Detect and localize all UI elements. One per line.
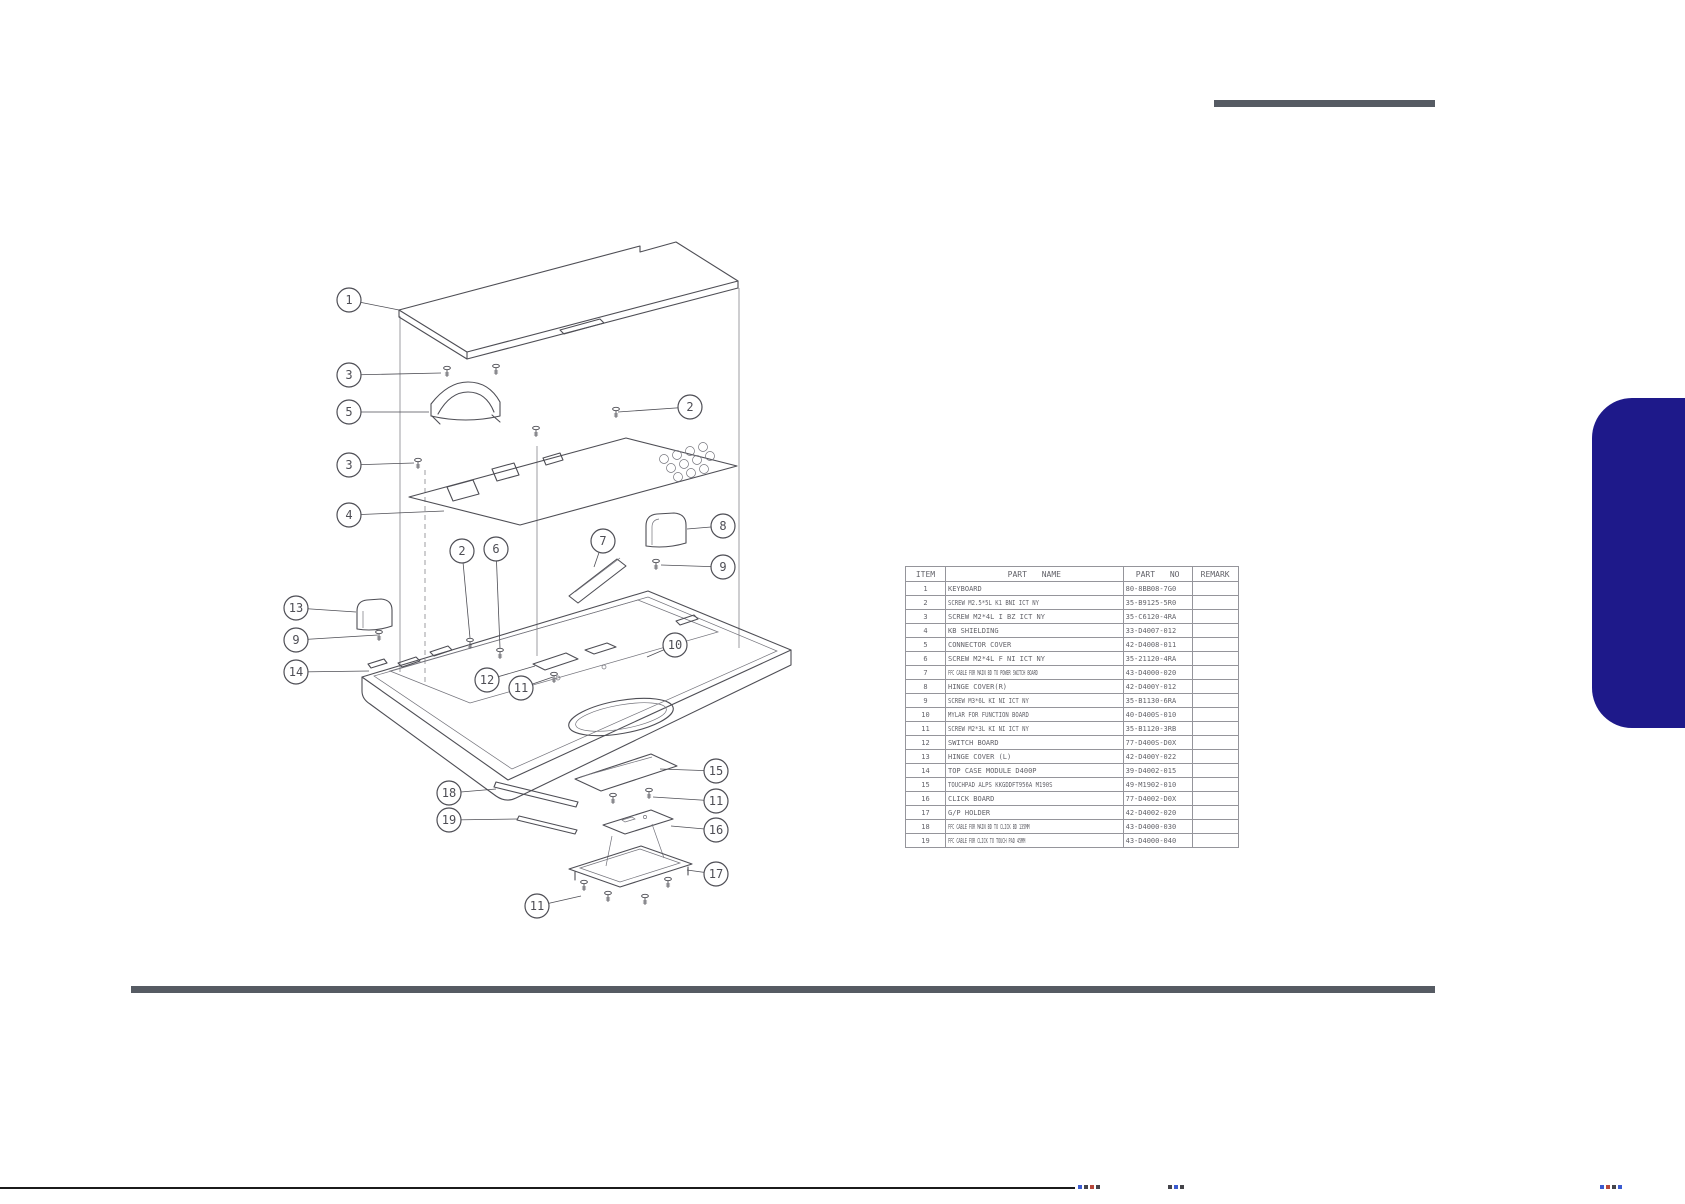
table-header-row: ITEM PART NAME PART NO REMARK [906, 567, 1239, 582]
cell-name: CLICK BOARD [946, 792, 1124, 806]
callout-number: 18 [442, 786, 456, 800]
callout-number: 4 [345, 508, 352, 522]
callout-9: 9 [284, 628, 378, 652]
hinge-cover-r-part [646, 513, 686, 547]
cell-part_no: 35-B1130-6RA [1123, 694, 1192, 708]
keyboard-part [399, 242, 738, 359]
shielding-screws [415, 407, 620, 468]
callout-number: 12 [480, 673, 494, 687]
cell-item: 4 [906, 624, 946, 638]
cell-part_no: 39-D4002-015 [1123, 764, 1192, 778]
callout-7: 7 [591, 529, 615, 567]
table-row: 3SCREW M2*4L I BZ ICT NY35-C6120-4RA [906, 610, 1239, 624]
callout-4: 4 [337, 503, 444, 527]
cell-remark [1192, 596, 1238, 610]
ffc-cable-18-part [494, 782, 578, 807]
table-row: 6SCREW M2*4L F NI ICT NY35-21120-4RA [906, 652, 1239, 666]
cell-item: 18 [906, 820, 946, 834]
cell-name: SCREW M2*4L F NI ICT NY [946, 652, 1124, 666]
kb-shielding-part [409, 438, 737, 525]
cell-part_no: 43-D4000-020 [1123, 666, 1192, 680]
callout-10: 10 [647, 633, 687, 657]
cell-part_no: 42-D400Y-012 [1123, 680, 1192, 694]
cell-part_no: 77-D400S-D0X [1123, 736, 1192, 750]
table-row: 4KB SHIELDING33-D4007-012 [906, 624, 1239, 638]
cell-part_no: 35-C6120-4RA [1123, 610, 1192, 624]
cell-item: 15 [906, 778, 946, 792]
callout-number: 11 [530, 899, 544, 913]
cell-name: TOUCHPAD ALPS KKGDDFT956A M190S [946, 778, 1124, 792]
callout-layer: 135342267891391410121115181119161711 [284, 288, 735, 918]
callout-6: 6 [484, 537, 508, 648]
cell-name: SCREW M2*4L I BZ ICT NY [946, 610, 1124, 624]
callout-number: 13 [289, 601, 303, 615]
cell-name: SCREW M3*6L KI NI ICT NY [946, 694, 1124, 708]
cell-item: 2 [906, 596, 946, 610]
cell-part_no: 42-D400Y-022 [1123, 750, 1192, 764]
cell-item: 5 [906, 638, 946, 652]
cell-part_no: 43-D4000-040 [1123, 834, 1192, 848]
cell-remark [1192, 778, 1238, 792]
callout-number: 17 [709, 867, 723, 881]
callout-number: 9 [719, 560, 726, 574]
cell-remark [1192, 764, 1238, 778]
cell-remark [1192, 722, 1238, 736]
table-row: 12SWITCH BOARD77-D400S-D0X [906, 736, 1239, 750]
table-row: 5CONNECTOR COVER42-D4008-011 [906, 638, 1239, 652]
callout-number: 16 [709, 823, 723, 837]
callout-number: 19 [442, 813, 456, 827]
cell-remark [1192, 666, 1238, 680]
cell-part_no: 33-D4007-012 [1123, 624, 1192, 638]
cell-item: 12 [906, 736, 946, 750]
table-row: 10MYLAR FOR FUNCTION BOARD40-D400S-010 [906, 708, 1239, 722]
cell-remark [1192, 708, 1238, 722]
gp-holder-part [569, 824, 692, 905]
table-row: 11SCREW M2*3L KI NI ICT NY35-B1120-3RB [906, 722, 1239, 736]
cell-name: KEYBOARD [946, 582, 1124, 596]
callout-number: 8 [719, 519, 726, 533]
cell-part_no: 35-B1120-3RB [1123, 722, 1192, 736]
projection-lines [400, 288, 739, 686]
cell-part_no: 42-D4008-011 [1123, 638, 1192, 652]
callout-11: 11 [653, 789, 728, 813]
hinge-cover-l-part [357, 599, 392, 630]
ffc-cable-part [569, 558, 626, 603]
cell-item: 17 [906, 806, 946, 820]
cell-item: 11 [906, 722, 946, 736]
connector-cover-part [431, 364, 500, 424]
callout-3: 3 [337, 453, 414, 477]
callout-number: 14 [289, 665, 303, 679]
cell-item: 19 [906, 834, 946, 848]
table-row: 9SCREW M3*6L KI NI ICT NY35-B1130-6RA [906, 694, 1239, 708]
cell-name: SCREW M2*3L KI NI ICT NY [946, 722, 1124, 736]
cell-remark [1192, 806, 1238, 820]
callout-2: 2 [450, 539, 474, 638]
callout-9: 9 [661, 555, 735, 579]
table-row: 17G/P HOLDER42-D4002-020 [906, 806, 1239, 820]
cell-remark [1192, 750, 1238, 764]
cell-name: G/P HOLDER [946, 806, 1124, 820]
manual-page: { "page": { "background": "#ffffff", "ac… [0, 0, 1685, 1193]
callout-16: 16 [671, 818, 728, 842]
cell-remark [1192, 582, 1238, 596]
function-board-area [533, 643, 616, 680]
cell-part_no: 77-D4002-D0X [1123, 792, 1192, 806]
cell-name: HINGE COVER (L) [946, 750, 1124, 764]
table-row: 14TOP CASE MODULE D400P39-D4002-015 [906, 764, 1239, 778]
callout-18: 18 [437, 781, 496, 805]
parts-table: ITEM PART NAME PART NO REMARK 1KEYBOARD8… [905, 566, 1239, 848]
callout-number: 2 [458, 544, 465, 558]
callout-number: 3 [345, 368, 352, 382]
cell-remark [1192, 820, 1238, 834]
cell-remark [1192, 610, 1238, 624]
cell-part_no: 35-B9125-5R0 [1123, 596, 1192, 610]
callout-3: 3 [337, 363, 441, 387]
touchpad-opening [566, 692, 676, 743]
callout-number: 2 [686, 400, 693, 414]
cell-remark [1192, 694, 1238, 708]
header-part-name: PART NAME [946, 567, 1124, 582]
cell-item: 1 [906, 582, 946, 596]
screw-9r [653, 559, 660, 569]
cell-remark [1192, 624, 1238, 638]
cell-item: 10 [906, 708, 946, 722]
touchpad-part [575, 754, 677, 791]
cell-remark [1192, 834, 1238, 848]
header-remark: REMARK [1192, 567, 1238, 582]
callout-8: 8 [687, 514, 735, 538]
callout-number: 6 [492, 542, 499, 556]
callout-17: 17 [687, 862, 728, 886]
callout-number: 3 [345, 458, 352, 472]
cell-remark [1192, 792, 1238, 806]
cell-item: 8 [906, 680, 946, 694]
cell-item: 3 [906, 610, 946, 624]
table-row: 19FFC CABLE FOR CLICK TO TOUCH PAD 45MM4… [906, 834, 1239, 848]
parts-table-body: 1KEYBOARD80-8BB08-7G02SCREW M2.5*5L K1 B… [906, 582, 1239, 848]
cell-remark [1192, 736, 1238, 750]
table-row: 18FFC CABLE FOR MAIN BD TO CLICK BD 135M… [906, 820, 1239, 834]
cell-item: 13 [906, 750, 946, 764]
header-item: ITEM [906, 567, 946, 582]
cell-part_no: 49-M1902-010 [1123, 778, 1192, 792]
cell-name: KB SHIELDING [946, 624, 1124, 638]
cell-item: 14 [906, 764, 946, 778]
table-row: 7FFC CABLE FOR MAIN BD TO POWER SWITCH B… [906, 666, 1239, 680]
cell-name: SCREW M2.5*5L K1 BNI ICT NY [946, 596, 1124, 610]
cell-name: CONNECTOR COVER [946, 638, 1124, 652]
callout-number: 11 [514, 681, 528, 695]
table-row: 1KEYBOARD80-8BB08-7G0 [906, 582, 1239, 596]
cell-name: SWITCH BOARD [946, 736, 1124, 750]
callout-number: 7 [599, 534, 606, 548]
screw-6 [497, 648, 504, 658]
table-row: 16CLICK BOARD77-D4002-D0X [906, 792, 1239, 806]
cell-part_no: 80-8BB08-7G0 [1123, 582, 1192, 596]
callout-11: 11 [525, 894, 581, 918]
callout-number: 1 [345, 293, 352, 307]
cell-part_no: 35-21120-4RA [1123, 652, 1192, 666]
callout-number: 11 [709, 794, 723, 808]
cell-name: MYLAR FOR FUNCTION BOARD [946, 708, 1124, 722]
header-part-no: PART NO [1123, 567, 1192, 582]
table-row: 15TOUCHPAD ALPS KKGDDFT956A M190S49-M190… [906, 778, 1239, 792]
cell-item: 6 [906, 652, 946, 666]
cell-name: FFC CABLE FOR MAIN BD TO CLICK BD 135MM [946, 820, 1124, 834]
table-row: 2SCREW M2.5*5L K1 BNI ICT NY35-B9125-5R0 [906, 596, 1239, 610]
callout-2: 2 [618, 395, 702, 419]
ffc-cable-19-part [517, 816, 577, 834]
callout-14: 14 [284, 660, 369, 684]
cell-name: FFC CABLE FOR MAIN BD TO POWER SWITCH BO… [946, 666, 1124, 680]
callout-number: 10 [668, 638, 682, 652]
table-row: 13HINGE COVER (L)42-D400Y-022 [906, 750, 1239, 764]
callout-number: 15 [709, 764, 723, 778]
cell-item: 9 [906, 694, 946, 708]
cell-item: 7 [906, 666, 946, 680]
callout-11: 11 [509, 676, 553, 700]
callout-1: 1 [337, 288, 399, 312]
cell-item: 16 [906, 792, 946, 806]
cell-remark [1192, 638, 1238, 652]
cell-name: FFC CABLE FOR CLICK TO TOUCH PAD 45MM [946, 834, 1124, 848]
callout-13: 13 [284, 596, 356, 620]
cell-part_no: 43-D4000-030 [1123, 820, 1192, 834]
callout-number: 9 [292, 633, 299, 647]
cell-remark [1192, 680, 1238, 694]
callout-19: 19 [437, 808, 517, 832]
click-board-part [603, 788, 673, 834]
callout-number: 5 [345, 405, 352, 419]
cell-remark [1192, 652, 1238, 666]
cell-name: TOP CASE MODULE D400P [946, 764, 1124, 778]
table-row: 8HINGE COVER(R)42-D400Y-012 [906, 680, 1239, 694]
callout-5: 5 [337, 400, 429, 424]
cell-name: HINGE COVER(R) [946, 680, 1124, 694]
cell-part_no: 42-D4002-020 [1123, 806, 1192, 820]
exploded-diagram: 135342267891391410121115181119161711 [0, 0, 1685, 1193]
cell-part_no: 40-D400S-010 [1123, 708, 1192, 722]
